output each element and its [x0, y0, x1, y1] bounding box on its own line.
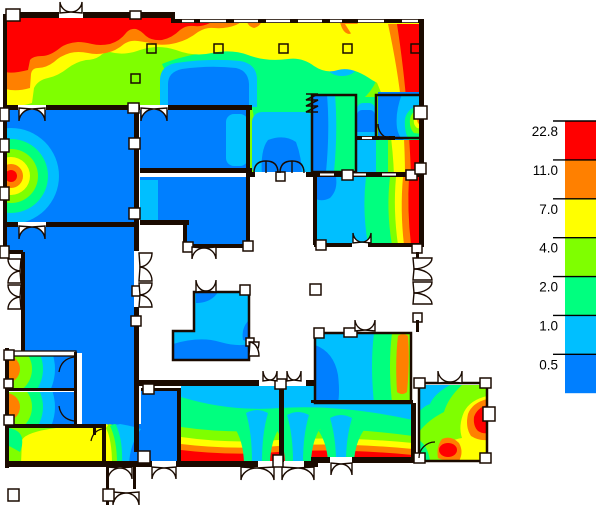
svg-text:1.0: 1.0 [539, 318, 558, 333]
svg-text:22.8: 22.8 [532, 124, 558, 139]
svg-text:2.0: 2.0 [539, 280, 558, 295]
svg-text:7.0: 7.0 [539, 202, 558, 217]
svg-text:11.0: 11.0 [533, 163, 558, 178]
svg-text:4.0: 4.0 [539, 241, 558, 256]
svg-text:0.5: 0.5 [539, 357, 558, 372]
